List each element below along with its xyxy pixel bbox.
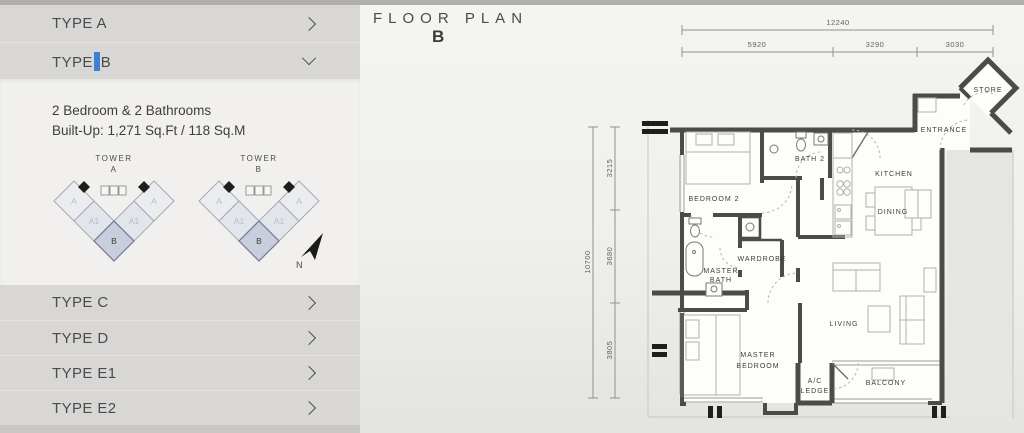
chevron-right-icon xyxy=(302,366,316,380)
floor-plan-selector-screen: TYPE A TYPEB 2 Bedroom & 2 Bathrooms Bui… xyxy=(0,0,1024,433)
svg-text:3215: 3215 xyxy=(605,159,614,178)
tower-a-keyplan: TOWER A A A1 B A1 A xyxy=(48,152,180,264)
label-master-bath-1: MASTER xyxy=(703,268,738,275)
dim-overall-depth: 10700 xyxy=(583,250,592,273)
svg-text:3290: 3290 xyxy=(866,40,885,49)
sidebar-item-type-e2[interactable]: TYPE E2 xyxy=(0,390,360,425)
tower-a-letter: A xyxy=(111,165,118,174)
svg-text:A: A xyxy=(296,196,302,206)
sidebar-item-type-d[interactable]: TYPE D xyxy=(0,320,360,355)
dimension-top: 12240 5920 3290 3030 xyxy=(682,18,993,57)
floor-plan-pane: FLOOR PLAN B 12240 xyxy=(360,0,1024,433)
tower-b-title: TOWER xyxy=(240,154,277,163)
svg-text:A: A xyxy=(216,196,222,206)
label-kitchen: KITCHEN xyxy=(875,171,913,178)
svg-text:A1: A1 xyxy=(234,216,245,226)
label-bedroom2: BEDROOM 2 xyxy=(688,196,739,203)
chevron-down-icon xyxy=(302,51,316,65)
type-list-bottom: TYPE C TYPE D TYPE E1 TYPE E2 xyxy=(0,285,360,425)
label-store: STORE xyxy=(974,87,1003,94)
sidebar-item-type-a[interactable]: TYPE A xyxy=(0,5,360,42)
type-list-top: TYPE A TYPEB xyxy=(0,5,360,79)
sidebar-item-type-e1[interactable]: TYPE E1 xyxy=(0,355,360,390)
tower-a-title: TOWER xyxy=(95,154,132,163)
label-wardrobe: WARDROBE xyxy=(738,256,787,263)
svg-text:3805: 3805 xyxy=(605,341,614,360)
svg-text:A: A xyxy=(151,196,157,206)
floor-plan-title: FLOOR PLAN xyxy=(373,10,528,27)
unit-summary: 2 Bedroom & 2 Bathrooms xyxy=(0,79,360,121)
type-sidebar: TYPE A TYPEB 2 Bedroom & 2 Bathrooms Bui… xyxy=(0,0,360,433)
sidebar-bottom-strip xyxy=(0,425,360,433)
svg-text:5920: 5920 xyxy=(748,40,767,49)
chevron-right-icon xyxy=(302,401,316,415)
svg-text:3030: 3030 xyxy=(946,40,965,49)
label-balcony: BALCONY xyxy=(866,380,906,387)
chevron-right-icon xyxy=(302,16,316,30)
floor-plan-drawing: 12240 5920 3290 3030 10700 xyxy=(580,0,1024,433)
dimension-left: 10700 3215 3680 3805 xyxy=(583,127,620,398)
built-up-area: Built-Up: 1,271 Sq.Ft / 118 Sq.M xyxy=(0,121,360,141)
type-a-label: TYPE A xyxy=(52,15,107,32)
chevron-right-icon xyxy=(302,331,316,345)
label-master-bedroom-2: BEDROOM xyxy=(736,363,779,370)
sidebar-item-type-b-expanded[interactable]: TYPEB xyxy=(0,42,360,79)
label-dining: DINING xyxy=(878,209,909,216)
label-ac-ledge-2: LEDGE xyxy=(801,388,830,395)
label-master-bedroom-1: MASTER xyxy=(740,352,775,359)
floor-plan-letter: B xyxy=(432,27,444,47)
svg-text:A1: A1 xyxy=(129,216,140,226)
label-master-bath-2: BATH xyxy=(710,277,732,284)
svg-text:B: B xyxy=(111,236,117,246)
label-bath2: BATH 2 xyxy=(795,156,825,163)
label-living: LIVING xyxy=(830,321,859,328)
sidebar-item-type-c[interactable]: TYPE C xyxy=(0,285,360,320)
dim-overall-width: 12240 xyxy=(826,18,849,27)
svg-text:B: B xyxy=(256,236,262,246)
svg-text:A1: A1 xyxy=(89,216,100,226)
type-b-label: TYPEB xyxy=(52,52,111,71)
svg-text:3680: 3680 xyxy=(605,247,614,266)
exterior-area xyxy=(947,150,1013,418)
north-label: N xyxy=(296,260,303,270)
text-cursor xyxy=(94,52,100,71)
svg-text:A1: A1 xyxy=(274,216,285,226)
top-edge-strip xyxy=(0,0,1024,5)
chevron-right-icon xyxy=(302,295,316,309)
label-ac-ledge-1: A/C xyxy=(808,378,823,385)
label-entrance: ENTRANCE xyxy=(921,127,968,134)
svg-text:A: A xyxy=(71,196,77,206)
north-arrow-icon: N xyxy=(293,230,333,274)
tower-b-letter: B xyxy=(256,165,263,174)
